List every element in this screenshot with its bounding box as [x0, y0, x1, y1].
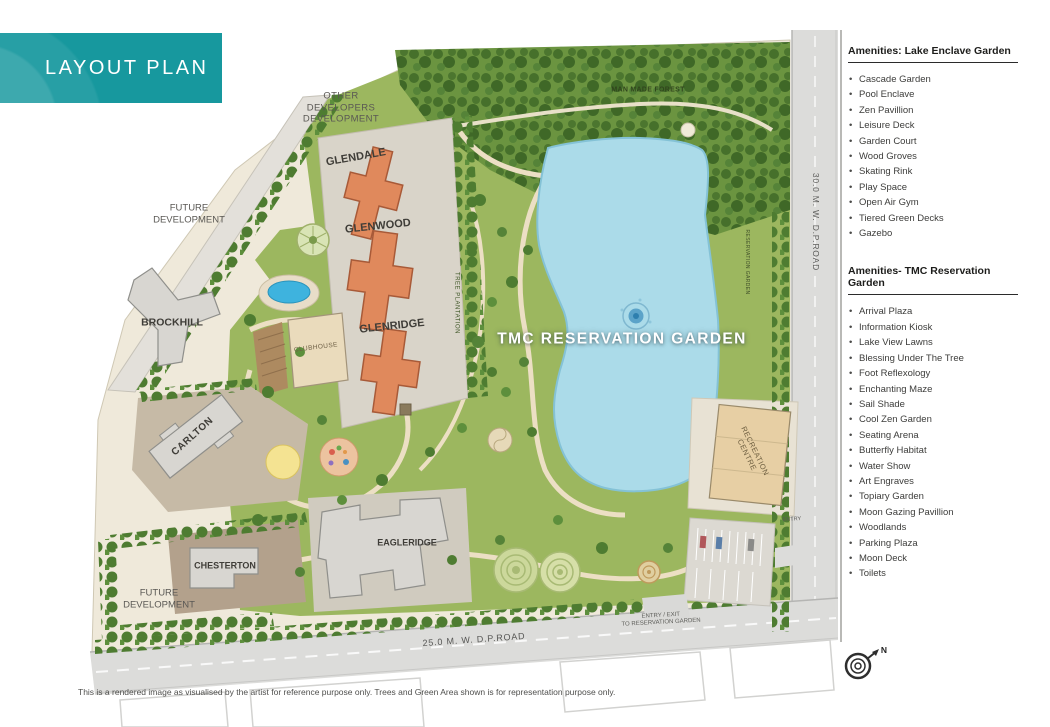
amenities-header-tmc-reservation: Amenities- TMC Reservation Garden	[848, 265, 1018, 295]
yellow-lawn	[266, 445, 300, 479]
amenity-item: Zen Pavillion	[848, 103, 1018, 118]
amenity-item: Lake View Lawns	[848, 335, 1018, 350]
zen-circle	[488, 428, 512, 452]
amenity-item: Moon Gazing Pavillion	[848, 505, 1018, 520]
amenity-item: Open Air Gym	[848, 195, 1018, 210]
amenity-item: Cool Zen Garden	[848, 412, 1018, 427]
amenities-section-tmc-reservation: Amenities- TMC Reservation Garden Arriva…	[848, 265, 1018, 581]
circular-garden	[297, 224, 329, 256]
amenity-item: Garden Court	[848, 134, 1018, 149]
amenities-section-lake-enclave: Amenities: Lake Enclave Garden Cascade G…	[848, 45, 1018, 241]
road-30m-shape	[792, 30, 838, 640]
amenity-item: Information Kiosk	[848, 320, 1018, 335]
entry-exit-drive	[642, 594, 690, 622]
amenities-list-tmc-reservation: Arrival PlazaInformation KioskLake View …	[848, 304, 1018, 581]
amenity-item: Topiary Garden	[848, 489, 1018, 504]
amenity-item: Art Engraves	[848, 474, 1018, 489]
amenity-item: Blessing Under The Tree	[848, 351, 1018, 366]
amenity-item: Play Space	[848, 180, 1018, 195]
amenity-item: Foot Reflexology	[848, 366, 1018, 381]
amenity-item: Wood Groves	[848, 149, 1018, 164]
amenity-item: Leisure Deck	[848, 118, 1018, 133]
amenity-item: Gazebo	[848, 226, 1018, 241]
amenity-item: Moon Deck	[848, 551, 1018, 566]
amenity-item: Butterfly Habitat	[848, 443, 1018, 458]
disclaimer-text: This is a rendered image as visualised b…	[78, 687, 615, 697]
amenity-item: Seating Arena	[848, 428, 1018, 443]
amenity-item: Skating Rink	[848, 164, 1018, 179]
title-banner: LAYOUT PLAN	[0, 33, 222, 103]
amenity-item: Tiered Green Decks	[848, 211, 1018, 226]
brockhill-pool	[259, 275, 319, 311]
amenities-sidebar: Amenities: Lake Enclave Garden Cascade G…	[848, 45, 1018, 606]
page: OTHER DEVELOPERS DEVELOPMENT GLENDALE MA…	[0, 0, 1050, 727]
recreation-centre-building	[709, 404, 790, 505]
amenity-item: Toilets	[848, 566, 1018, 581]
amenity-item: Water Show	[848, 459, 1018, 474]
amenity-item: Cascade Garden	[848, 72, 1018, 87]
amenity-item: Woodlands	[848, 520, 1018, 535]
amenities-list-lake-enclave: Cascade GardenPool EnclaveZen PavillionL…	[848, 72, 1018, 241]
page-title: LAYOUT PLAN	[45, 57, 208, 80]
amenity-item: Pool Enclave	[848, 87, 1018, 102]
entry-drive	[775, 545, 795, 568]
compass-icon	[846, 649, 879, 678]
parking-plaza	[684, 518, 775, 606]
pergola	[400, 404, 411, 415]
sidebar-divider	[840, 30, 842, 642]
amenity-item: Enchanting Maze	[848, 382, 1018, 397]
path-node	[681, 123, 695, 137]
amenity-item: Parking Plaza	[848, 536, 1018, 551]
playground	[320, 438, 358, 476]
amenities-header-lake-enclave: Amenities: Lake Enclave Garden	[848, 45, 1018, 63]
amenity-item: Sail Shade	[848, 397, 1018, 412]
amenity-item: Arrival Plaza	[848, 304, 1018, 319]
